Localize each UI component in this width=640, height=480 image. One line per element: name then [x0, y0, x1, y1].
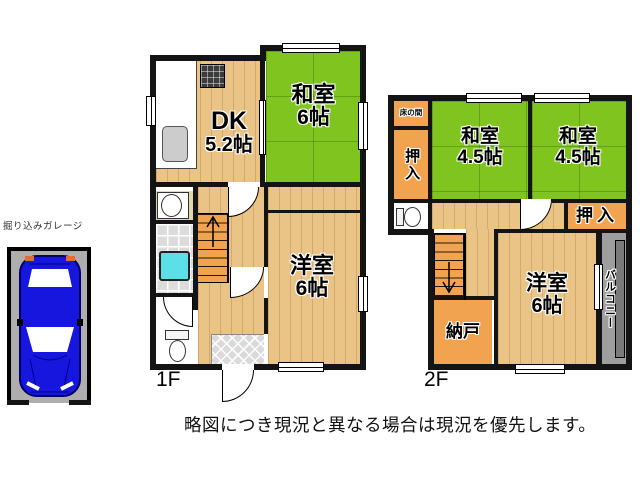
- wall: [428, 101, 432, 229]
- toilet-tank-2f: [396, 208, 404, 226]
- window: [515, 364, 565, 374]
- toilet-bowl-icon-1f: [169, 340, 186, 362]
- disclaimer: 略図につき現況と異なる場合は現況を優先します。: [184, 412, 596, 437]
- room-label-nando: 納戸: [434, 300, 492, 364]
- room-label-tokonoma: 床の間: [394, 101, 428, 126]
- window: [358, 102, 368, 150]
- window: [282, 43, 340, 53]
- garage-label: 掘り込みガレージ: [3, 218, 83, 232]
- room-label-youshitsu-2f: 洋室 6帖: [498, 258, 596, 332]
- wall: [494, 229, 632, 233]
- window: [534, 93, 590, 103]
- garage-opening-stub-right: [69, 400, 91, 405]
- kitchen-sink: [162, 126, 188, 162]
- floor1-label: 1F: [156, 368, 181, 392]
- room-label-balcony: バルコニー: [600, 238, 617, 360]
- wall: [193, 187, 198, 310]
- hall-2f-lower: [466, 229, 494, 300]
- wall: [360, 45, 366, 370]
- toilet-bowl-icon-2f: [404, 207, 421, 227]
- stairs-edge: [464, 233, 466, 300]
- bathtub: [159, 251, 190, 281]
- car-top-view: [17, 253, 83, 399]
- wall: [528, 101, 532, 199]
- wall: [150, 55, 266, 61]
- floor2-label: 2F: [424, 368, 449, 392]
- wall: [260, 182, 366, 187]
- stairs-edge: [227, 213, 229, 283]
- room-label-washitsu-b: 和室 4.5帖: [538, 118, 618, 178]
- room-label-youshitsu-1f: 洋室 6帖: [272, 248, 352, 306]
- room-label-oshiire-right: 押入: [568, 203, 626, 229]
- stove-icon: [200, 64, 225, 88]
- washbasin-bowl-icon: [161, 194, 182, 217]
- wall: [150, 220, 197, 224]
- room-label-oshiire-left: 押入: [394, 132, 428, 198]
- wall: [390, 199, 430, 203]
- wall: [432, 199, 520, 203]
- wall: [265, 210, 360, 213]
- room-label-dk: DK 5.2帖: [193, 104, 265, 160]
- wall: [150, 182, 228, 187]
- floor-plan-canvas: 掘り込みガレージ: [0, 0, 640, 480]
- window: [278, 362, 324, 372]
- genkan: [211, 334, 264, 364]
- window: [358, 276, 368, 312]
- window: [466, 93, 522, 103]
- room-label-washitsu-1f: 和室 6帖: [276, 78, 351, 134]
- toilet-tank-1f: [165, 330, 189, 340]
- garage-opening-stub-left: [7, 400, 29, 405]
- window: [146, 96, 156, 126]
- wall: [390, 126, 430, 130]
- entrance-door-arc: [222, 370, 254, 402]
- wall: [264, 187, 268, 267]
- stairs-up-arrow: [205, 215, 221, 249]
- room-label-washitsu-a: 和室 4.5帖: [440, 118, 520, 178]
- stairs-down-arrow: [441, 260, 457, 294]
- wall: [264, 298, 268, 334]
